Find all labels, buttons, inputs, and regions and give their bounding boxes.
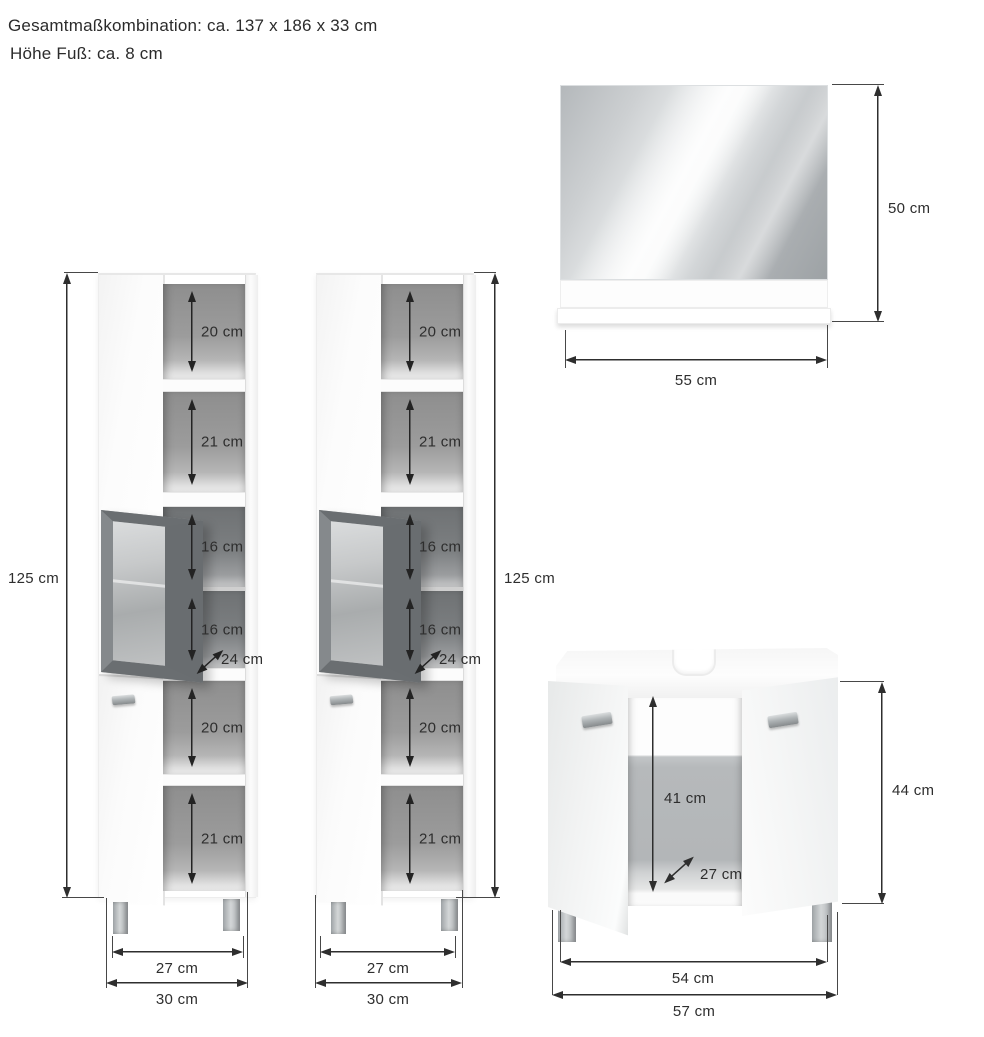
height-arrow — [405, 793, 415, 884]
furniture-dimension-diagram: Gesamtmaßkombination: ca. 137 x 186 x 33… — [0, 0, 984, 1037]
mirror-width-label: 55 cm — [666, 372, 726, 389]
extension-line — [315, 895, 316, 988]
compartment-height-label: 20 cm — [419, 719, 461, 736]
extension-line — [560, 910, 561, 962]
total-width-dimension — [315, 978, 462, 988]
cabinet-height-label: 125 cm — [504, 570, 554, 587]
cabinet-height-dimension — [490, 273, 500, 898]
feet-width-label: 27 cm — [358, 960, 418, 977]
feet-width-dimension — [320, 947, 455, 957]
vanity-total-width-label: 57 cm — [664, 1003, 724, 1020]
vanity-foot — [812, 900, 832, 942]
compartment-height-label: 20 cm — [419, 323, 461, 340]
wall-mirror — [560, 85, 828, 322]
extension-line — [827, 325, 828, 368]
shelf-compartment: 20 cm — [381, 284, 463, 379]
height-arrow — [405, 514, 415, 580]
extension-line — [837, 912, 838, 995]
height-arrow — [187, 598, 197, 661]
vanity-height-label: 44 cm — [892, 782, 934, 799]
shelf-board — [163, 774, 245, 786]
glass-pane — [331, 521, 383, 665]
cabinet-foot — [113, 902, 128, 934]
shelf-board — [381, 492, 463, 507]
vanity-height-dimension — [877, 682, 887, 904]
compartment-height-label: 21 cm — [419, 830, 461, 847]
extension-line — [455, 936, 456, 958]
height-arrow — [187, 399, 197, 485]
compartment-height-label: 16 cm — [201, 621, 243, 638]
cabinet-height-label: 125 cm — [8, 570, 58, 587]
mirror-frame-bottom — [560, 280, 828, 308]
mirror-width-dimension — [565, 355, 827, 365]
total-width-dimension — [106, 978, 248, 988]
compartment-height-label: 20 cm — [201, 323, 243, 340]
extension-line — [243, 936, 244, 958]
height-arrow — [187, 793, 197, 884]
height-arrow — [405, 399, 415, 485]
depth-label: 24 cm — [221, 651, 263, 668]
mirror-shelf-ledge — [557, 308, 831, 324]
extension-line — [106, 898, 107, 988]
height-arrow — [405, 598, 415, 661]
cabinet-body: 20 cm 21 cm 16 cm 16 cm 24 cm — [98, 273, 256, 898]
compartment-height-label: 16 cm — [201, 539, 243, 556]
mirror-glass — [560, 85, 828, 280]
shelf-compartment: 20 cm — [163, 681, 245, 774]
extension-line — [552, 910, 553, 995]
shelf-compartment: 20 cm — [381, 681, 463, 774]
door-handle — [111, 694, 135, 705]
overall-dimensions-text: Gesamtmaßkombination: ca. 137 x 186 x 33… — [8, 16, 378, 36]
compartment-height-label: 20 cm — [201, 719, 243, 736]
height-arrow — [187, 688, 197, 767]
feet-width-label: 27 cm — [147, 960, 207, 977]
shelf-board — [163, 379, 245, 392]
compartment-height-label: 16 cm — [419, 621, 461, 638]
vanity-feet-width-label: 54 cm — [663, 970, 723, 987]
cabinet-body: 20 cm 21 cm 16 cm 16 cm 24 cm — [316, 273, 474, 898]
shelf-compartment: 20 cm — [163, 284, 245, 379]
mirror-height-label: 50 cm — [888, 200, 930, 217]
shelf-compartment: 21 cm — [163, 392, 245, 492]
extension-line — [247, 892, 248, 988]
compartment-height-label: 21 cm — [201, 830, 243, 847]
shelf-compartment: 21 cm — [381, 392, 463, 492]
height-arrow — [187, 514, 197, 580]
vanity-interior-height-label: 41 cm — [664, 790, 706, 807]
shelf-board — [163, 492, 245, 507]
cabinet-foot — [331, 902, 346, 934]
extension-line — [462, 890, 463, 988]
depth-label: 24 cm — [439, 651, 481, 668]
shelf-compartment: 21 cm — [381, 786, 463, 891]
compartment-height-label: 21 cm — [201, 434, 243, 451]
vanity-interior-height-arrow — [648, 696, 658, 892]
cabinet-side-panel — [245, 275, 258, 897]
shelf-board — [381, 379, 463, 392]
extension-line — [827, 915, 828, 962]
cabinet-side-panel — [463, 275, 476, 897]
door-handle — [329, 694, 353, 705]
feet-width-dimension — [112, 947, 243, 957]
height-arrow — [405, 688, 415, 767]
tall-cabinet-left: 20 cm 21 cm 16 cm 16 cm 24 cm — [98, 273, 256, 898]
foot-height-text: Höhe Fuß: ca. 8 cm — [10, 44, 163, 64]
cabinet-foot — [223, 899, 240, 931]
cabinet-foot — [441, 899, 458, 931]
mirror-height-dimension — [873, 85, 883, 322]
height-arrow — [405, 291, 415, 372]
vanity-total-width-dimension — [552, 990, 837, 1000]
shelf-compartment: 21 cm — [163, 786, 245, 891]
tall-cabinet-right: 20 cm 21 cm 16 cm 16 cm 24 cm — [316, 273, 474, 898]
glass-pane — [113, 521, 165, 665]
vanity-feet-width-dimension — [560, 957, 827, 967]
compartment-height-label: 16 cm — [419, 539, 461, 556]
cabinet-lower-door — [317, 674, 383, 905]
cabinet-lower-door — [99, 674, 165, 905]
height-arrow — [187, 291, 197, 372]
compartment-height-label: 21 cm — [419, 434, 461, 451]
sink-pipe-notch — [672, 648, 716, 676]
vanity-depth-label: 27 cm — [700, 866, 742, 883]
cabinet-height-dimension — [62, 273, 72, 898]
total-width-label: 30 cm — [358, 991, 418, 1008]
total-width-label: 30 cm — [147, 991, 207, 1008]
shelf-board — [381, 774, 463, 786]
